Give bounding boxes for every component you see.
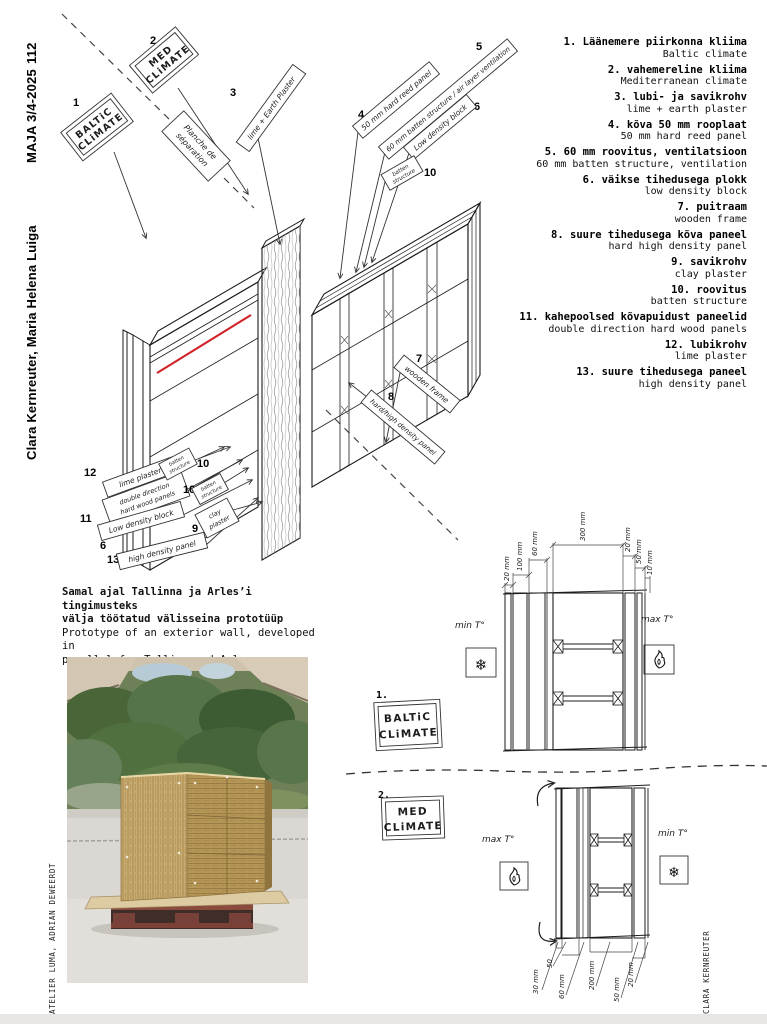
- max-temp-label: max T°: [641, 615, 673, 625]
- snowflake-icon: ❄: [466, 648, 496, 677]
- dimension-fan-med: 30 mm 50 60 mm 200 mm 50 mm 20 mm: [532, 938, 648, 1002]
- measurement-label: 50 mm: [613, 977, 621, 1002]
- wall-section-med: [537, 783, 650, 941]
- climate-label-baltic: BALTiC CLiMATE: [61, 93, 134, 161]
- part-number: 12: [84, 467, 96, 479]
- legend-item-et: 8. suure tihedusega kõva paneel: [407, 229, 747, 242]
- legend-item-en: low density block: [407, 186, 747, 198]
- legend-item-en: wooden frame: [407, 214, 747, 226]
- measurement-label: 10 mm: [646, 550, 654, 575]
- legend-item: 7. puitraamwooden frame: [407, 201, 747, 226]
- legend-item-et: 2. vahemereline kliima: [407, 64, 747, 77]
- legend-item-en: clay plaster: [407, 269, 747, 281]
- legend-item: 1. Läänemere piirkonna kliimaBaltic clim…: [407, 36, 747, 61]
- climate-label-med: MED CLiMATE: [129, 27, 198, 93]
- legend-item-en: batten structure: [407, 296, 747, 308]
- legend-item: 5. 60 mm roovitus, ventilatsioon60 mm ba…: [407, 146, 747, 171]
- section-sketch-baltic: 1. BALTiC CLiMATE min T° ❄ max T°: [374, 512, 674, 751]
- legend-item-et: 5. 60 mm roovitus, ventilatsioon: [407, 146, 747, 159]
- legend-item: 10. roovitusbatten structure: [407, 284, 747, 309]
- part-number: 11: [80, 513, 92, 525]
- legend-item-en: hard high density panel: [407, 241, 747, 253]
- legend-item-et: 9. savikrohv: [407, 256, 747, 269]
- page-edge-bar: [0, 1014, 767, 1024]
- part-number: 1: [73, 97, 79, 109]
- measurement-label: 200 mm: [588, 961, 596, 990]
- legend-item: 3. lubi- ja savikrohvlime + earth plaste…: [407, 91, 747, 116]
- part-number: 6: [100, 540, 106, 552]
- magazine-page: 1 BALTiC CLiMATE 2 MED CLiMATE Planche d…: [0, 0, 767, 1024]
- wall-section-baltic: [503, 590, 647, 751]
- sidebar-page-number: 112: [24, 42, 39, 64]
- measurement-label: 60 mm: [531, 531, 539, 556]
- separation-board: [262, 219, 304, 560]
- legend-item: 8. suure tihedusega kõva paneelhard high…: [407, 229, 747, 254]
- part-number: 3: [230, 87, 236, 99]
- legend-item-et: 7. puitraam: [407, 201, 747, 214]
- measurement-label: 20 mm: [624, 527, 632, 552]
- svg-text:lime + Earth Plaster: lime + Earth Plaster: [246, 74, 298, 141]
- separator-label: Planche de séparation: [162, 111, 230, 181]
- legend-item: 12. lubikrohvlime plaster: [407, 339, 747, 364]
- climate-title-box-med: MED CLiMATE: [381, 796, 444, 840]
- legend-item-et: 10. roovitus: [407, 284, 747, 297]
- svg-text:❄: ❄: [668, 865, 680, 881]
- legend-item-en: lime plaster: [407, 351, 747, 363]
- measurement-label: 50: [546, 959, 554, 968]
- legend-item-et: 1. Läänemere piirkonna kliima: [407, 36, 747, 49]
- legend-item-et: 12. lubikrohv: [407, 339, 747, 352]
- legend-item-en: 50 mm hard reed panel: [407, 131, 747, 143]
- legend-item: 9. savikrohvclay plaster: [407, 256, 747, 281]
- measurement-label: 30 mm: [532, 969, 540, 994]
- legend-item-et: 13. suure tihedusega paneel: [407, 366, 747, 379]
- caption-et-line2: välja töötatud välisseina prototüüp: [62, 613, 332, 627]
- legend-item: 4. kõva 50 mm rooplaat50 mm hard reed pa…: [407, 119, 747, 144]
- part-label-3: lime + Earth Plaster: [236, 64, 305, 151]
- part-number: 9: [192, 523, 198, 535]
- legend-item: 13. suure tihedusega paneelhigh density …: [407, 366, 747, 391]
- sidebar-issue: MAJA 3/4-2025: [24, 69, 39, 163]
- photo-caption: Samal ajal Tallinna ja Arles’i tingimust…: [62, 586, 332, 667]
- svg-text:❄: ❄: [475, 656, 488, 674]
- max-temp-label: max T°: [482, 835, 514, 845]
- svg-text:BALTiC: BALTiC: [384, 711, 432, 725]
- legend-item: 11. kahepoolsed kõvapuidust paneeliddoub…: [407, 311, 747, 336]
- caption-et-line1: Samal ajal Tallinna ja Arles’i tingimust…: [62, 586, 332, 613]
- measurement-label: 20 mm: [503, 556, 511, 581]
- legend-item-et: 3. lubi- ja savikrohv: [407, 91, 747, 104]
- sidebar-authors: Clara Kernreuter, Maria Helena Luiga: [24, 225, 39, 460]
- dimension-fan-baltic: 20 mm 100 mm 60 mm 300 mm 20 mm 50 mm 10…: [502, 512, 654, 593]
- legend-item-en: double direction hard wood panels: [407, 324, 747, 336]
- svg-text:CLiMATE: CLiMATE: [384, 820, 444, 834]
- legend-item-et: 6. väikse tihedusega plokk: [407, 174, 747, 187]
- legend-item-en: 60 mm batten structure, ventilation: [407, 159, 747, 171]
- min-temp-label: min T°: [658, 829, 688, 839]
- legend-item-et: 11. kahepoolsed kõvapuidust paneelid: [407, 311, 747, 324]
- snowflake-icon: ❄: [660, 856, 688, 884]
- legend-item-et: 4. kõva 50 mm rooplaat: [407, 119, 747, 132]
- measurement-label: 60 mm: [558, 974, 566, 999]
- part-number: 8: [388, 391, 394, 403]
- flame-icon: [644, 645, 674, 674]
- legend: 1. Läänemere piirkonna kliimaBaltic clim…: [407, 36, 747, 394]
- legend-item-en: high density panel: [407, 379, 747, 391]
- legend-item: 2. vahemereline kliimaMediterranean clim…: [407, 64, 747, 89]
- prototype-photo: [67, 657, 308, 983]
- measurement-label: 50 mm: [635, 539, 643, 564]
- drawing-credit: CLARA KERNREUTER: [702, 931, 711, 1014]
- dashed-divider: [346, 765, 767, 774]
- caption-en-line1: Prototype of an exterior wall, developed…: [62, 627, 332, 654]
- svg-text:MED: MED: [397, 805, 428, 818]
- measurement-label: 300 mm: [579, 512, 587, 541]
- climate-title-box-baltic: BALTiC CLiMATE: [374, 699, 442, 750]
- flame-icon: [500, 862, 528, 890]
- photo-credit: ATELIER LUMA, ADRIAN DEWEERDT: [48, 863, 57, 1014]
- legend-item-en: Mediterranean climate: [407, 76, 747, 88]
- airflow-arrow: [539, 922, 556, 941]
- section-sketch-med: 2. MED CLiMATE max T° min T° ❄: [378, 783, 688, 1002]
- part-label-13: high density panel: [116, 532, 207, 569]
- legend-item-en: lime + earth plaster: [407, 104, 747, 116]
- legend-item-en: Baltic climate: [407, 49, 747, 61]
- measurement-label: 20 mm: [627, 962, 635, 987]
- legend-item: 6. väikse tihedusega plokklow density bl…: [407, 174, 747, 199]
- min-temp-label: min T°: [455, 621, 485, 631]
- sketch-number: 1.: [376, 690, 388, 701]
- measurement-label: 100 mm: [516, 542, 524, 571]
- airflow-arrow: [537, 783, 554, 806]
- part-label-8: hard/high density panel: [361, 390, 445, 464]
- part-number: 10: [197, 458, 209, 470]
